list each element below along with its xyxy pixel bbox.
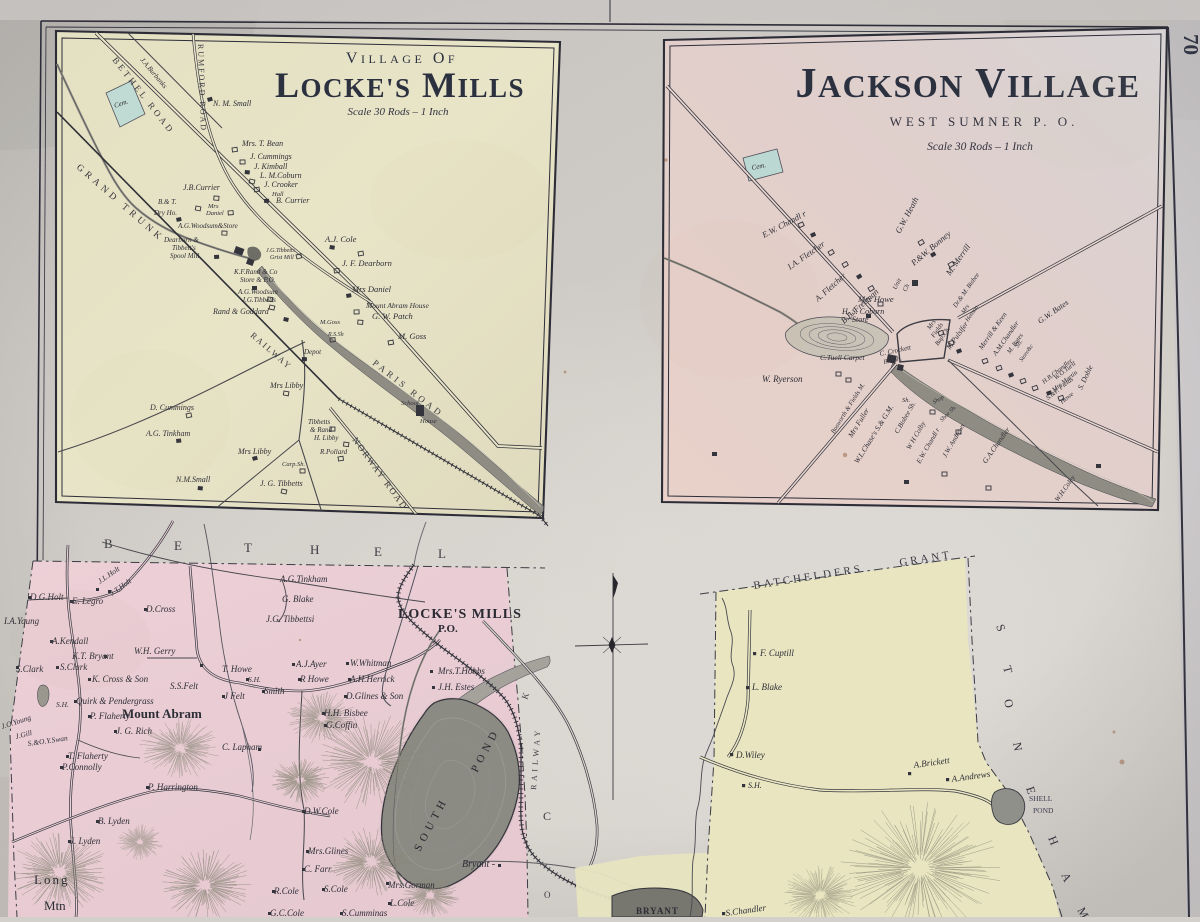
svg-text:A.G.Woodsum&Store: A.G.Woodsum&Store bbox=[177, 222, 238, 230]
svg-text:C: C bbox=[543, 809, 551, 823]
svg-text:J.G. Tibbettsi: J.G. Tibbettsi bbox=[266, 614, 315, 624]
svg-text:S.H.: S.H. bbox=[56, 700, 69, 709]
svg-text:Mrs Daniel: Mrs Daniel bbox=[351, 284, 392, 294]
svg-text:Mrs Howe: Mrs Howe bbox=[857, 294, 894, 304]
svg-text:G.C.Cole: G.C.Cole bbox=[270, 908, 304, 917]
svg-text:Scale 30 Rods – 1 Inch: Scale 30 Rods – 1 Inch bbox=[927, 141, 1033, 153]
svg-text:Rand & Goddard: Rand & Goddard bbox=[212, 307, 270, 316]
svg-text:G.Coffin: G.Coffin bbox=[326, 720, 358, 730]
svg-text:L. Blake: L. Blake bbox=[751, 682, 782, 692]
svg-text:H. Libby: H. Libby bbox=[313, 434, 339, 442]
svg-text:T: T bbox=[244, 540, 252, 555]
svg-text:M.Goss: M.Goss bbox=[319, 319, 341, 326]
svg-text:J.B.Currier: J.B.Currier bbox=[183, 183, 221, 192]
svg-text:Bryant -: Bryant - bbox=[462, 859, 495, 870]
svg-text:S.H.: S.H. bbox=[248, 675, 261, 684]
svg-text:D.Cross: D.Cross bbox=[145, 604, 176, 614]
svg-text:J.G.Tibbetts: J.G.Tibbetts bbox=[266, 248, 296, 254]
svg-text:W. Ryerson: W. Ryerson bbox=[762, 374, 803, 384]
svg-text:J. G. Rich: J. G. Rich bbox=[116, 726, 152, 736]
svg-text:G. W. Patch: G. W. Patch bbox=[372, 311, 413, 321]
svg-text:L: L bbox=[438, 546, 446, 561]
svg-text:Sh.: Sh. bbox=[902, 397, 911, 404]
svg-text:K.F.Rand & Co: K.F.Rand & Co bbox=[233, 268, 278, 276]
svg-text:House: House bbox=[419, 418, 437, 425]
svg-text:W.Whitman: W.Whitman bbox=[350, 658, 392, 668]
svg-text:R.S.Sh: R.S.Sh bbox=[327, 332, 344, 338]
svg-text:Tibbett's: Tibbett's bbox=[172, 244, 196, 252]
svg-text:B. Currier: B. Currier bbox=[276, 196, 310, 205]
svg-text:B. Lyden: B. Lyden bbox=[98, 816, 130, 826]
svg-text:Mrs.T.Hobbs: Mrs.T.Hobbs bbox=[437, 666, 485, 676]
svg-text:N. M. Small: N. M. Small bbox=[212, 99, 252, 108]
svg-text:& Rand: & Rand bbox=[310, 426, 332, 434]
svg-text:B.& T.: B.& T. bbox=[158, 198, 177, 206]
svg-text:L. M.Coburn: L. M.Coburn bbox=[259, 171, 302, 180]
svg-text:S.Cumminas: S.Cumminas bbox=[342, 908, 388, 917]
svg-text:D.Wiley: D.Wiley bbox=[735, 750, 765, 760]
svg-text:Mrs.Gorman: Mrs.Gorman bbox=[387, 880, 435, 890]
svg-text:S.Cole: S.Cole bbox=[324, 884, 348, 894]
svg-text:H: H bbox=[310, 542, 319, 557]
svg-text:C. Farr: C. Farr bbox=[304, 864, 332, 874]
svg-text:Tibbetts: Tibbetts bbox=[308, 418, 330, 426]
svg-text:S.S.Felt: S.S.Felt bbox=[170, 681, 198, 691]
svg-text:Mrs. T. Bean: Mrs. T. Bean bbox=[241, 139, 283, 148]
svg-text:Mrs: Mrs bbox=[207, 203, 219, 210]
svg-text:J.H. Estes: J.H. Estes bbox=[438, 682, 475, 692]
svg-text:J. Lyden: J. Lyden bbox=[70, 836, 101, 846]
svg-text:Mount Abram House: Mount Abram House bbox=[365, 301, 429, 310]
svg-text:C.Tuell Carpet: C.Tuell Carpet bbox=[820, 353, 866, 362]
svg-text:BRYANT: BRYANT bbox=[636, 906, 679, 916]
svg-text:F. Cuptill: F. Cuptill bbox=[759, 648, 794, 658]
svg-text:J Felt: J Felt bbox=[224, 691, 245, 701]
svg-text:R Howe: R Howe bbox=[299, 674, 329, 684]
svg-text:A.G.Tinkham: A.G.Tinkham bbox=[279, 574, 328, 584]
svg-text:Daniel: Daniel bbox=[205, 210, 224, 217]
svg-text:R.Cole: R.Cole bbox=[273, 886, 299, 896]
svg-text:Grist Mill: Grist Mill bbox=[270, 255, 294, 261]
svg-text:Carp.Sh.: Carp.Sh. bbox=[282, 461, 305, 468]
svg-text:E: E bbox=[174, 538, 182, 553]
svg-text:Mrs.Glines: Mrs.Glines bbox=[307, 846, 349, 856]
svg-text:Mrs Libby: Mrs Libby bbox=[269, 381, 304, 390]
svg-text:J. Crooker: J. Crooker bbox=[264, 180, 299, 189]
svg-text:Quirk & Pendergrass: Quirk & Pendergrass bbox=[76, 696, 154, 706]
svg-text:S.H.: S.H. bbox=[748, 781, 762, 790]
svg-text:A.J.Ayer: A.J.Ayer bbox=[295, 659, 327, 669]
svg-text:Mtn: Mtn bbox=[44, 898, 66, 913]
svg-text:Scale 30 Rods – 1 Inch: Scale 30 Rods – 1 Inch bbox=[347, 106, 449, 118]
svg-text:J. G. Tibbetts: J. G. Tibbetts bbox=[260, 479, 303, 488]
svg-text:A.H.Herrick: A.H.Herrick bbox=[349, 674, 395, 684]
svg-text:D.W.Cole: D.W.Cole bbox=[303, 806, 339, 816]
svg-text:A.G.Woodsum: A.G.Woodsum bbox=[237, 288, 278, 296]
svg-text:R.Pollard: R.Pollard bbox=[319, 448, 348, 456]
svg-text:J. F. Dearborn: J. F. Dearborn bbox=[342, 258, 392, 268]
svg-text:Long: Long bbox=[34, 872, 69, 887]
svg-text:J. Cummings: J. Cummings bbox=[250, 152, 292, 161]
svg-text:M. Goss: M. Goss bbox=[397, 331, 427, 341]
svg-text:G. Blake: G. Blake bbox=[282, 594, 314, 604]
svg-text:E: E bbox=[374, 544, 382, 559]
svg-text:D.Glines & Son: D.Glines & Son bbox=[345, 691, 404, 701]
svg-text:70: 70 bbox=[1179, 34, 1200, 55]
svg-text:Store & P.O.: Store & P.O. bbox=[240, 276, 276, 284]
svg-text:SHELL: SHELL bbox=[1029, 794, 1053, 803]
svg-text:L.Cole: L.Cole bbox=[389, 898, 414, 908]
svg-text:Dry Ho.: Dry Ho. bbox=[153, 209, 177, 217]
svg-text:C. Lapham: C. Lapham bbox=[222, 742, 263, 752]
svg-text:P.O.: P.O. bbox=[438, 623, 458, 635]
svg-text:Depot: Depot bbox=[303, 348, 322, 356]
svg-text:A.J. Cole: A.J. Cole bbox=[324, 234, 357, 244]
svg-text:Mrs Libby: Mrs Libby bbox=[237, 447, 272, 456]
svg-text:Mount Abram: Mount Abram bbox=[122, 706, 202, 721]
svg-text:Dearborn &: Dearborn & bbox=[163, 236, 199, 244]
svg-text:LOCKE'S MILLS: LOCKE'S MILLS bbox=[398, 607, 522, 622]
svg-text:POND: POND bbox=[1033, 806, 1054, 815]
svg-text:P.Connolly: P.Connolly bbox=[61, 762, 102, 772]
svg-text:P. Harrington: P. Harrington bbox=[147, 782, 198, 792]
svg-text:H.H. Bisbee: H.H. Bisbee bbox=[323, 708, 368, 718]
svg-text:T. Flaherty: T. Flaherty bbox=[68, 751, 108, 761]
svg-text:Spool Mill: Spool Mill bbox=[170, 252, 199, 260]
svg-text:J. Kimball: J. Kimball bbox=[254, 162, 288, 171]
svg-text:Smith: Smith bbox=[264, 686, 285, 696]
svg-text:O: O bbox=[544, 890, 551, 900]
svg-text:T. Howe: T. Howe bbox=[222, 664, 252, 674]
